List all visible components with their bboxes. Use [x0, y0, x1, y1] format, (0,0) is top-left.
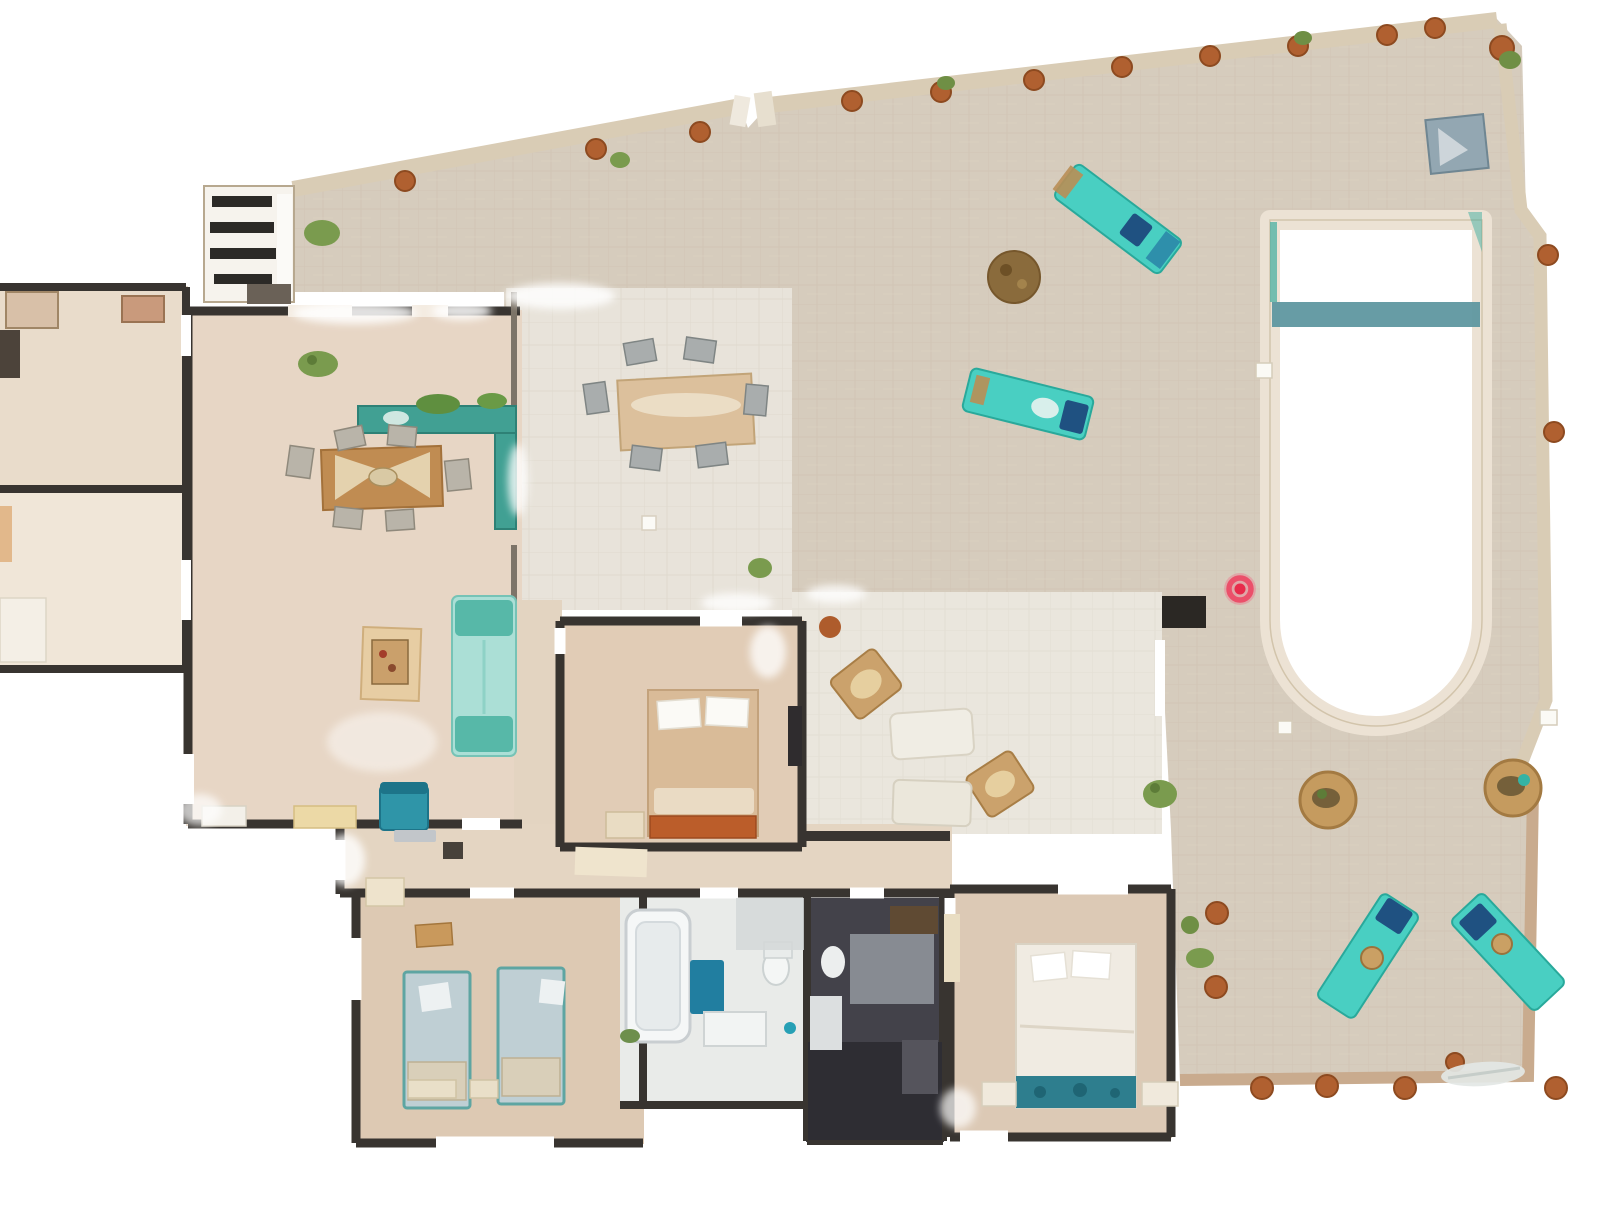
sofa-cushion-bottom [455, 716, 513, 752]
bath-shower-panel [736, 898, 804, 950]
master-nightstand[interactable] [606, 812, 644, 838]
bottom-green-1 [1186, 948, 1214, 968]
highlight-hall-entry [325, 834, 365, 886]
highlight-living-top-1 [293, 302, 417, 324]
wall-pot-3 [690, 122, 710, 142]
guest-pillow-1 [1031, 952, 1068, 981]
guest-throw-texture-3 [1110, 1088, 1120, 1098]
guest-nightstand-1[interactable] [982, 1082, 1016, 1106]
highlight-living-top-2 [432, 302, 492, 320]
darkroom-counter-wood [890, 906, 938, 934]
patio-floor-socket [642, 516, 656, 530]
bath-plant [620, 1029, 640, 1043]
wall-pot-6 [1024, 70, 1044, 90]
bath-teal-accessory [784, 1022, 796, 1034]
master-foot-bench[interactable] [650, 816, 756, 838]
guest-nightstand-2[interactable] [1142, 1082, 1178, 1106]
twin-bed-2-fold [539, 979, 565, 1005]
terrace-socket-1 [1256, 363, 1272, 378]
terrace-socket-3 [1278, 721, 1292, 734]
dollhouse-view[interactable] [0, 0, 1606, 1205]
nav-marker-center[interactable] [1235, 584, 1246, 595]
bottom-pot-2 [1205, 976, 1227, 998]
hallway-mat [575, 847, 648, 877]
leftwing-orange-edge [0, 506, 12, 562]
leftwing-art-frame-1 [6, 292, 58, 328]
right-pot-1 [1538, 245, 1558, 265]
armchair-base [394, 830, 436, 842]
dining-chair-3[interactable] [387, 425, 417, 447]
lounge-plant-shade [1150, 783, 1160, 793]
twin-dresser[interactable] [415, 923, 452, 947]
wall-pot-1 [395, 171, 415, 191]
kitchen-plant-2 [477, 393, 507, 409]
bath-mat-teal [690, 960, 724, 1014]
dining-chair-1[interactable] [286, 445, 314, 478]
dining-chair-4[interactable] [444, 459, 471, 491]
dining-chair-6[interactable] [385, 509, 414, 531]
guest-throw-texture-2 [1073, 1083, 1087, 1097]
bottom-green-2 [1181, 916, 1199, 934]
stair-landing-shadow [247, 284, 291, 304]
twin-bed-1-fold [418, 982, 451, 1012]
master-tv-unit[interactable] [788, 706, 802, 766]
highlight-master-corner [750, 626, 786, 678]
highlight-lounge-top [806, 585, 866, 603]
patio-chair-5[interactable] [630, 445, 662, 470]
living-floor-plant [298, 351, 338, 377]
bottom-pot-7 [1545, 1077, 1567, 1099]
guest-cream-column [944, 914, 960, 982]
guest-throw-texture-1 [1034, 1086, 1046, 1098]
hallway-dark-item [443, 842, 463, 859]
armchair-backrest [380, 782, 428, 794]
dining-chair-5[interactable] [333, 507, 363, 530]
leftwing-rug [0, 598, 46, 662]
pool-water-stripe [1272, 302, 1480, 327]
terrace-bush-texture-2 [1017, 279, 1027, 289]
kitchen-plant-1 [416, 394, 460, 414]
wall-pot-11 [1425, 18, 1445, 38]
lounge-ottoman[interactable] [892, 780, 971, 827]
pool-teal-edge [1270, 222, 1277, 302]
wall-pot-2-green [610, 152, 630, 168]
terrace-socket-2 [1540, 710, 1557, 725]
darkroom-fixture-white [810, 996, 842, 1050]
wall-pot-2 [586, 139, 606, 159]
terrace-round-bush [988, 251, 1040, 303]
wall-pot-12-green [1499, 51, 1521, 69]
bench-cream[interactable] [294, 806, 356, 828]
highlight-patio-top [505, 283, 615, 309]
bottom-pot-4 [1316, 1075, 1338, 1097]
lounge-plant [1143, 780, 1177, 808]
twin-bed-2-pillow [502, 1058, 560, 1096]
twin-wardrobe[interactable] [366, 878, 404, 906]
twin-stool-1[interactable] [408, 1080, 456, 1098]
wall-pot-8 [1200, 46, 1220, 66]
leftwing-art-frame-2 [122, 296, 164, 322]
bathtub-inner [636, 922, 680, 1030]
sun-lounger-4-tray [1492, 934, 1512, 954]
bath-vanity[interactable] [704, 1012, 766, 1046]
master-pillow-2 [705, 697, 748, 727]
wall-pot-4 [842, 91, 862, 111]
patio-table-highlight [631, 393, 741, 417]
patio-chair-6[interactable] [696, 442, 728, 467]
right-pot-2 [1544, 422, 1564, 442]
highlight-guest-corner [940, 1088, 976, 1128]
stair-rail [277, 194, 292, 298]
stair-step-1 [212, 196, 272, 207]
patio-chair-3[interactable] [583, 382, 609, 415]
coffee-tray-decor-1 [379, 650, 387, 658]
bottom-pot-3 [1251, 1077, 1273, 1099]
leftwing-dark-corner [0, 330, 20, 378]
master-foot-pillows [654, 788, 754, 814]
coffee-tray-decor-2 [388, 664, 396, 672]
scene-shapes [0, 18, 1567, 1144]
sofa-cushion-top [455, 600, 513, 636]
pool-planter-right-teal [1518, 774, 1530, 786]
guest-pillow-2 [1071, 951, 1111, 980]
patio-chair-2[interactable] [684, 337, 717, 363]
highlight-living-corner [178, 794, 222, 826]
swimming-pool[interactable] [1270, 220, 1482, 726]
sun-lounger-3-tray [1361, 947, 1383, 969]
living-floor-plant-shade [307, 355, 317, 365]
lounge-sofa[interactable] [889, 708, 974, 760]
stair-step-2 [210, 222, 274, 233]
darkroom-toilet[interactable] [821, 946, 845, 978]
wall-pot-9-green [1294, 31, 1312, 45]
floorplan-canvas[interactable] [0, 0, 1606, 1205]
wall-pot-7 [1112, 57, 1132, 77]
bottom-pot-5 [1394, 1077, 1416, 1099]
coffee-table-tray [372, 640, 408, 684]
wall-pot-10 [1377, 25, 1397, 45]
wall-pot-5-green [937, 76, 955, 90]
terrace-bush-texture-1 [1000, 264, 1012, 276]
stair-step-4 [214, 274, 272, 284]
lounge-pot-terracotta [819, 616, 841, 638]
bottom-pot-1 [1206, 902, 1228, 924]
dining-centerpiece [369, 468, 397, 486]
patio-plant [748, 558, 772, 578]
pool-planter-left-green [1317, 789, 1327, 799]
highlight-patio-bottom [701, 593, 773, 613]
kitchen-sink [383, 411, 409, 425]
stair-step-3 [210, 248, 276, 259]
darkroom-fixture-grey [902, 1040, 938, 1094]
highlight-living-center [327, 712, 437, 772]
highlight-passage [508, 444, 528, 516]
twin-stool-2[interactable] [470, 1080, 498, 1098]
patio-chair-1[interactable] [623, 339, 656, 366]
lounge-dark-doorway[interactable] [1162, 596, 1206, 628]
terrace-green-bush [304, 220, 340, 246]
darkroom-shower-tray [850, 934, 934, 1004]
master-pillow-1 [657, 699, 701, 730]
patio-chair-4[interactable] [744, 384, 769, 416]
